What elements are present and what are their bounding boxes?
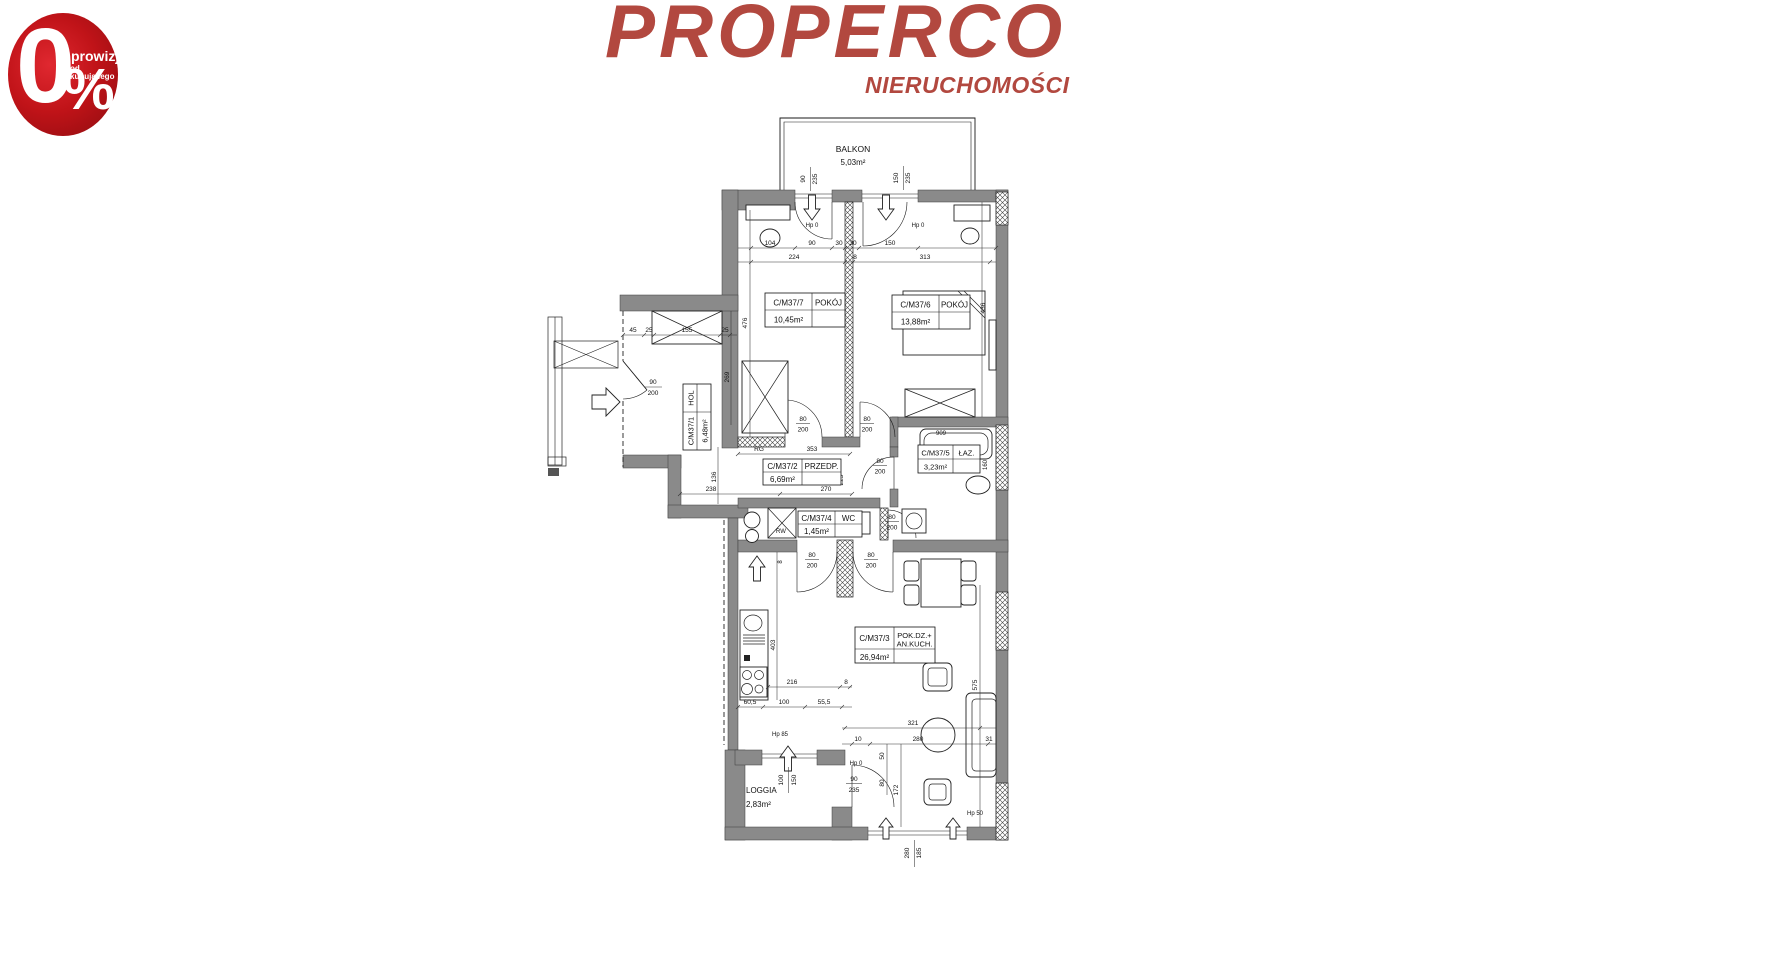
- dim: 436: [980, 302, 987, 313]
- balcony-door1-h: 235: [812, 173, 819, 184]
- dim: 160: [983, 459, 989, 470]
- dim: 321: [908, 720, 919, 727]
- desk-room7: [746, 205, 790, 220]
- dim: 90: [808, 240, 816, 247]
- zero-commission-badge: 0 % prowizji od kupującego: [8, 13, 118, 136]
- washing-machine: [902, 509, 926, 533]
- dim: 150: [885, 240, 896, 247]
- radiator-room6: [989, 320, 996, 370]
- room3-name2: AN.KUCH.: [897, 640, 933, 649]
- page: 0 % prowizji od kupującego PROPERCO NIER…: [0, 0, 1776, 970]
- entrance-h: 200: [648, 390, 659, 397]
- chair-room6: [961, 228, 979, 244]
- room7-name: POKÓJ: [815, 299, 842, 308]
- room2-area: 6,69m²: [770, 475, 795, 484]
- dining-chair4: [961, 585, 976, 605]
- dim: 200: [875, 469, 886, 476]
- dim: 45: [629, 327, 637, 334]
- washer-small: [746, 530, 759, 543]
- room2-id: C/M37/2: [767, 462, 798, 471]
- dim: 238: [706, 486, 717, 493]
- dim: 80: [876, 458, 884, 465]
- rw-label: RW: [776, 529, 786, 535]
- room-label-5: C/M37/5 ŁAZ. 3,23m²: [918, 445, 980, 473]
- dim: 10: [854, 736, 862, 743]
- dim: 8: [844, 679, 848, 686]
- dim: 80: [863, 416, 871, 423]
- entrance-arrow: [592, 388, 620, 416]
- boundary-dashed-lines: [623, 311, 724, 745]
- brand-logo: PROPERCO: [605, 0, 1066, 69]
- room4-id: C/M37/4: [801, 514, 832, 523]
- dim: 50: [879, 752, 886, 760]
- dim: 200: [862, 427, 873, 434]
- dim: 200: [887, 525, 898, 532]
- dim: 200: [866, 563, 877, 570]
- kitchen-arrow: [749, 556, 765, 581]
- washbasin: [966, 476, 990, 494]
- room6-id: C/M37/6: [900, 301, 931, 310]
- room6-area: 13,88m²: [901, 318, 931, 327]
- dim: 909: [936, 431, 947, 437]
- dim: 80: [867, 552, 875, 559]
- dim: 200: [807, 563, 818, 570]
- loggia-window-arrow: [780, 746, 796, 771]
- balkon-area: 5,03m²: [841, 158, 866, 167]
- dim: 172: [893, 784, 900, 795]
- room-label-6: C/M37/6 POKÓJ 13,88m²: [892, 295, 970, 329]
- rg-label: RG: [754, 446, 764, 453]
- room7-id: C/M37/7: [773, 299, 804, 308]
- balcony-door2-h: 235: [905, 172, 912, 183]
- dim: 100: [779, 699, 790, 706]
- dim: 269: [724, 371, 731, 382]
- room4-name: WC: [842, 514, 856, 523]
- floor-plan: BALKON 5,03m² 90 235 150 235 Hp 0 Hp 0 1…: [540, 95, 1020, 885]
- badge-line2: od kupującego: [70, 65, 118, 81]
- hp0-label-1: Hp 0: [806, 223, 819, 229]
- balcony: [780, 118, 975, 192]
- room6-name: POKÓJ: [941, 301, 968, 310]
- hp0-label-3: Hp 0: [850, 761, 863, 767]
- room-label-1: C/M37/1 HOL 6,48m²: [683, 384, 711, 450]
- dim: 8: [853, 254, 857, 261]
- dim: 60,5: [744, 699, 757, 706]
- balcony-door2-arrow: [878, 195, 894, 220]
- room2-name: PRZEDP.: [805, 462, 839, 471]
- dim: 575: [972, 679, 979, 690]
- dim: 185: [916, 847, 923, 858]
- room-label-7: C/M37/7 POKÓJ 10,45m²: [765, 293, 845, 327]
- dim: 30: [835, 240, 843, 247]
- dining-chair1: [904, 561, 919, 581]
- dim: 476: [742, 317, 749, 328]
- room3-area: 26,94m²: [860, 653, 890, 662]
- dim: 155: [682, 327, 693, 334]
- room-label-4: C/M37/4 WC 1,45m²: [798, 511, 862, 537]
- armchair1: [923, 663, 952, 691]
- room4-area: 1,45m²: [804, 527, 829, 536]
- hp85-label: Hp 85: [772, 732, 789, 738]
- dim: 31: [985, 736, 993, 743]
- dim: 150: [791, 774, 798, 785]
- room5-name: ŁAZ.: [959, 449, 975, 458]
- dim: 55,5: [818, 699, 831, 706]
- dim: 200: [798, 427, 809, 434]
- dining-chair3: [961, 561, 976, 581]
- dim: 313: [920, 254, 931, 261]
- room1-area: 6,48m²: [701, 419, 710, 443]
- desk-room6: [954, 205, 990, 221]
- bottom-window-arrow1: [879, 818, 893, 839]
- dim: 224: [789, 254, 800, 261]
- dim: 104: [765, 240, 776, 247]
- dim: 25: [721, 327, 729, 334]
- brand-logo-subtitle: NIERUCHOMOŚCI: [865, 74, 1070, 97]
- balcony-door1-w: 90: [800, 175, 807, 183]
- entrance-w: 90: [649, 379, 657, 386]
- coffee-table: [921, 718, 955, 752]
- dim: 80: [808, 552, 816, 559]
- dim: 235: [849, 787, 860, 794]
- dim: 403: [770, 639, 777, 650]
- room-label-2: C/M37/2 PRZEDP. 6,69m²: [763, 459, 841, 485]
- dim: 25: [645, 327, 653, 334]
- dining-chair2: [904, 585, 919, 605]
- loggia-label: LOGGIA: [746, 786, 777, 795]
- sofa: [966, 693, 996, 777]
- loggia-area: 2,83m²: [746, 800, 771, 809]
- room3-id: C/M37/3: [859, 634, 890, 643]
- dim: 80: [879, 779, 886, 787]
- dim: 80: [799, 416, 807, 423]
- boiler: [744, 512, 760, 528]
- dim: 280: [904, 847, 911, 858]
- room-label-3: C/M37/3 POK.DZ.+ AN.KUCH. 26,94m²: [855, 627, 935, 663]
- hp0-label-2: Hp 0: [912, 223, 925, 229]
- dim: 216: [787, 679, 798, 686]
- room1-id: C/M37/1: [687, 417, 696, 445]
- dim: 90: [850, 776, 858, 783]
- room7-area: 10,45m²: [774, 316, 804, 325]
- room5-id: C/M37/5: [921, 449, 949, 458]
- dim: 353: [807, 446, 818, 453]
- dim: 30: [849, 240, 857, 247]
- room5-area: 3,23m²: [924, 463, 948, 472]
- balcony-door1-arrow: [804, 195, 820, 220]
- dining-table: [921, 559, 961, 607]
- hp50-label: Hp 50: [967, 811, 984, 817]
- room1-name: HOL: [687, 390, 696, 405]
- dim: 136: [711, 471, 718, 482]
- balcony-door2-w: 150: [893, 172, 900, 183]
- dim: 8: [778, 560, 784, 564]
- badge-line1: prowizji: [71, 49, 123, 63]
- dim: 280: [913, 736, 924, 743]
- armchair2: [924, 779, 951, 805]
- balkon-label: BALKON: [836, 144, 871, 154]
- dim: 100: [778, 774, 785, 785]
- bottom-window-arrow2: [946, 818, 960, 839]
- dim: 270: [821, 486, 832, 493]
- dim: 80: [888, 514, 896, 521]
